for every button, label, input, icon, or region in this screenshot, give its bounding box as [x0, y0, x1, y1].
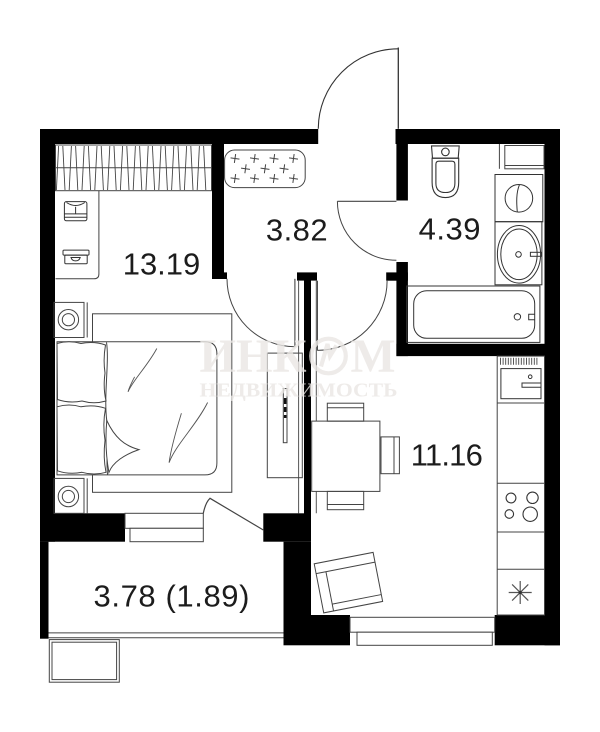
svg-text:3.82: 3.82 [266, 213, 328, 248]
svg-text:4.39: 4.39 [419, 212, 481, 247]
svg-text:ИНК: ИНК [200, 330, 307, 383]
svg-text:11.16: 11.16 [411, 437, 482, 472]
svg-text:НЕДВИЖИМОСТЬ: НЕДВИЖИМОСТЬ [200, 380, 398, 402]
svg-text:М: М [351, 330, 396, 383]
svg-text:3.78 (1.89): 3.78 (1.89) [94, 579, 251, 614]
svg-text:13.19: 13.19 [123, 247, 201, 282]
